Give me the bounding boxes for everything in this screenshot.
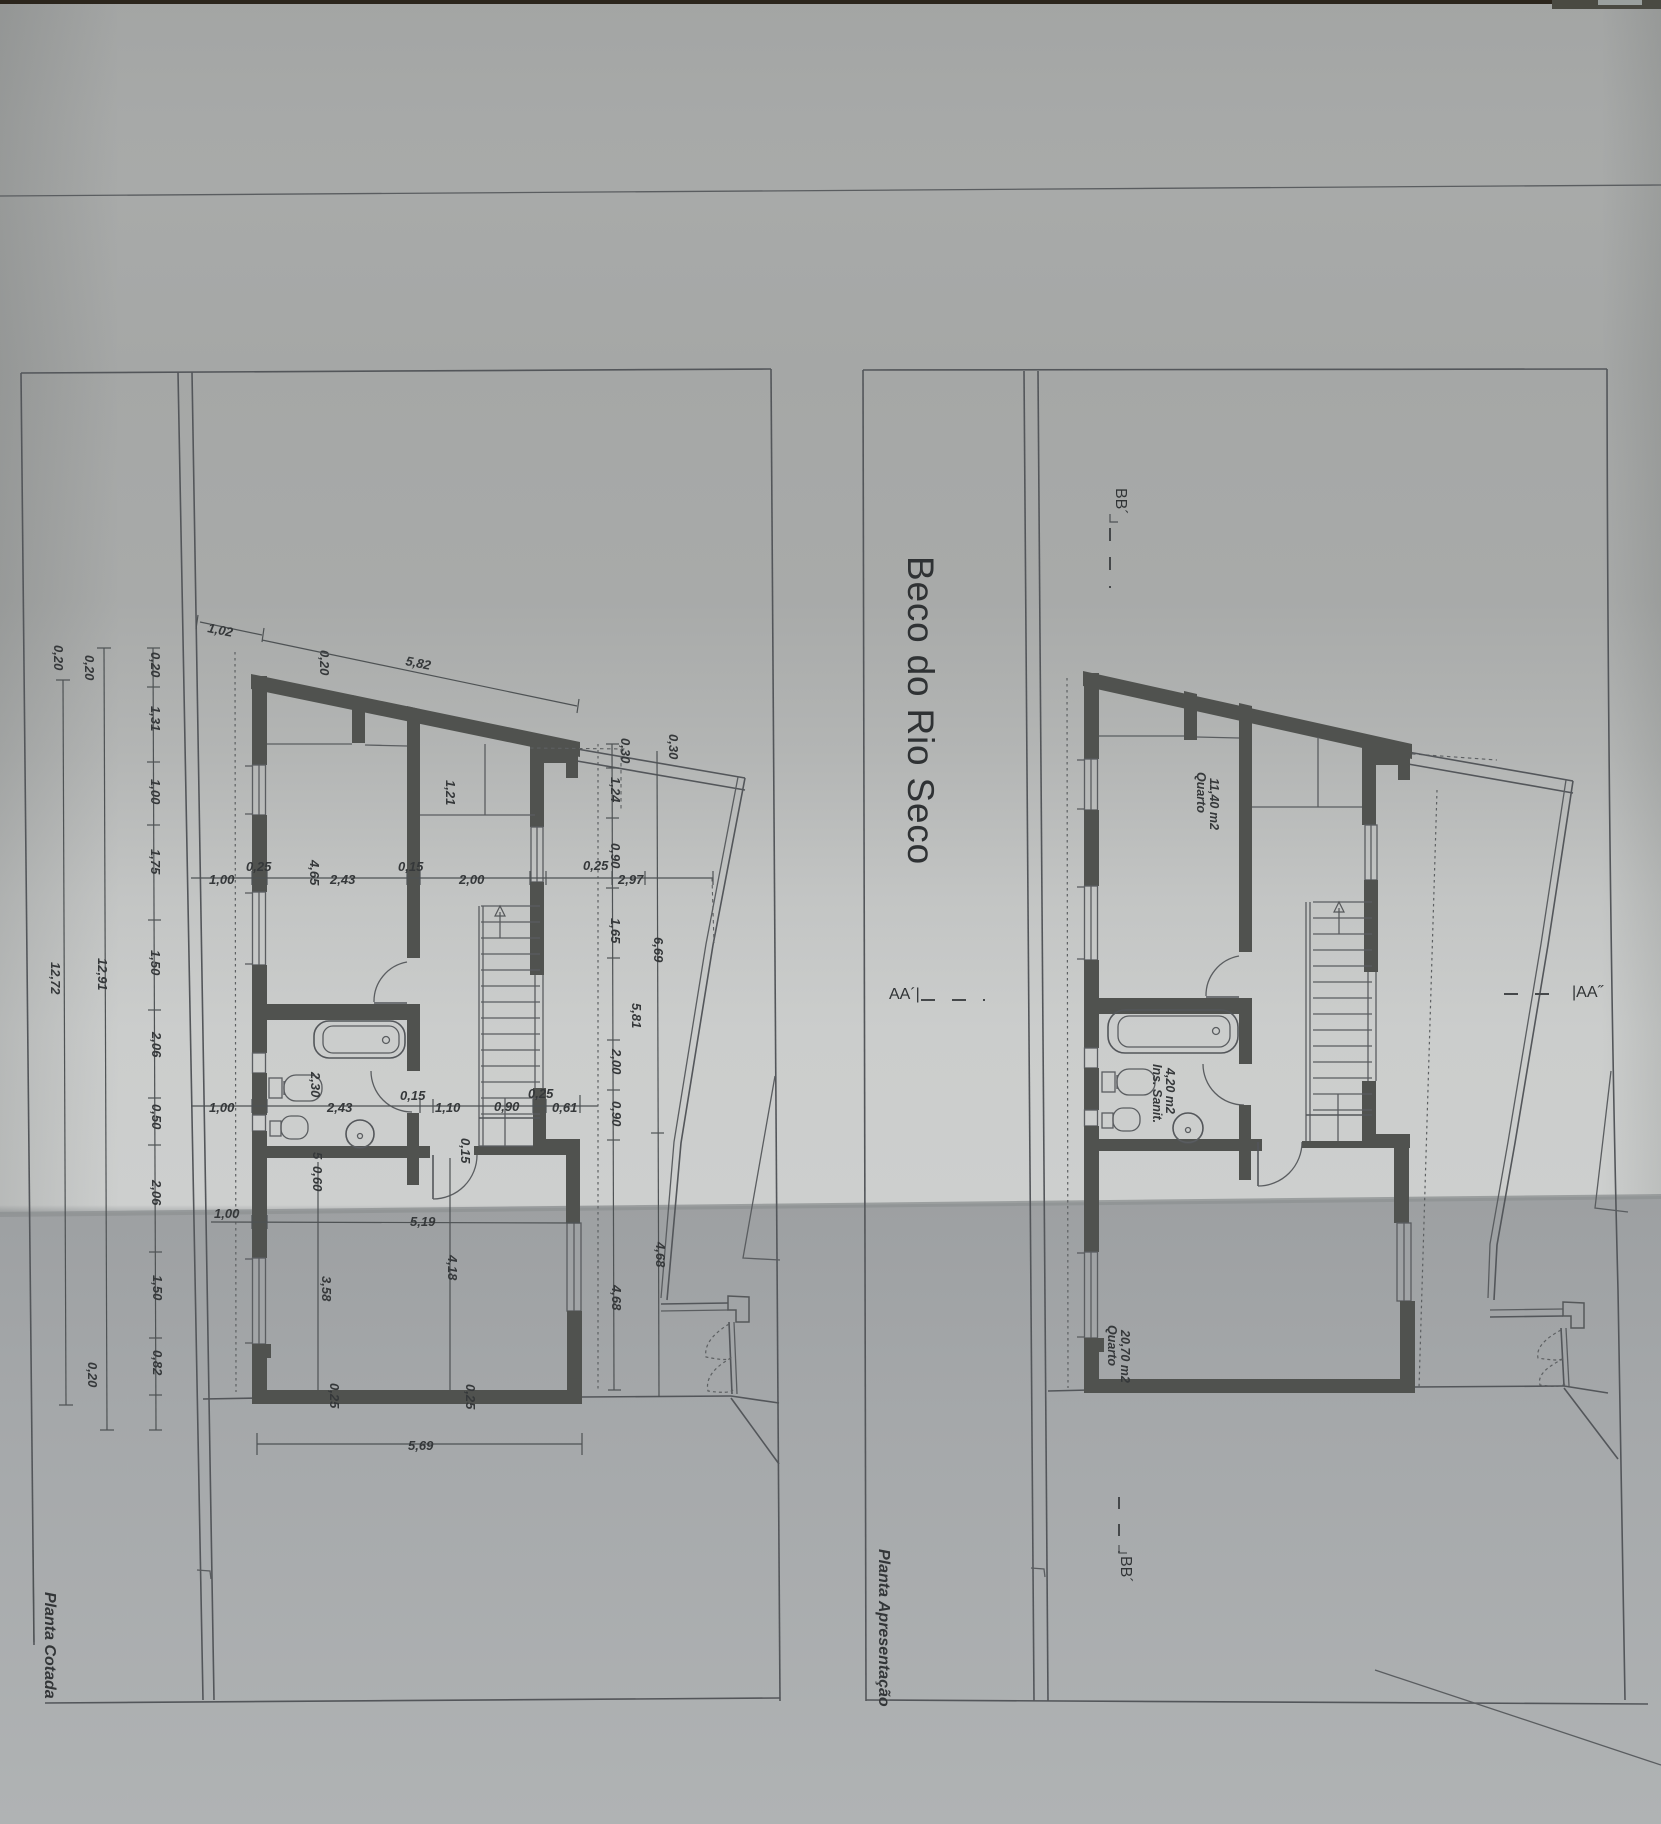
svg-text:4,68: 4,68 [609,1284,624,1311]
svg-text:1,00: 1,00 [209,1100,235,1115]
svg-text:1,50: 1,50 [150,1275,165,1301]
svg-text:2,43: 2,43 [329,872,356,887]
svg-text:5,81: 5,81 [629,1003,644,1028]
svg-text:2,00: 2,00 [609,1048,624,1075]
svg-text:Planta Apresentação: Planta Apresentação [875,1549,892,1707]
svg-text:|AA˝: |AA˝ [1572,984,1605,1001]
svg-text:2,06: 2,06 [149,1179,164,1206]
svg-text:Ins. Sanit.: Ins. Sanit. [1150,1064,1164,1123]
svg-text:6,69: 6,69 [651,937,666,963]
svg-text:1,24: 1,24 [608,777,623,803]
svg-text:4,18: 4,18 [445,1254,460,1281]
svg-text:0,20: 0,20 [148,652,163,678]
svg-text:1,21: 1,21 [443,780,458,805]
svg-text:1,00: 1,00 [148,779,163,805]
svg-text:0,20: 0,20 [51,645,66,671]
svg-text:0,15: 0,15 [458,1138,473,1164]
svg-text:Planta Cotada: Planta Cotada [41,1592,58,1699]
svg-text:1,75: 1,75 [148,849,163,875]
svg-text:0,90: 0,90 [609,1101,624,1127]
svg-text:0,90: 0,90 [608,843,623,869]
svg-text:1,00: 1,00 [214,1206,240,1221]
svg-text:0,30: 0,30 [666,734,681,760]
svg-text:2,97: 2,97 [617,872,644,887]
svg-text:5,19: 5,19 [410,1214,436,1229]
svg-text:1,31: 1,31 [148,706,163,731]
svg-text:4,20 m2: 4,20 m2 [1163,1067,1177,1114]
svg-text:12,91: 12,91 [95,958,110,991]
svg-text:0,15: 0,15 [398,859,424,874]
svg-text:2,43: 2,43 [326,1100,353,1115]
svg-text:0,61: 0,61 [552,1100,577,1115]
svg-text:20,70 m2: 20,70 m2 [1118,1329,1132,1383]
svg-text:0,50: 0,50 [149,1104,164,1130]
svg-text:0,30: 0,30 [618,738,633,764]
svg-text:0,25: 0,25 [463,1384,478,1410]
svg-text:1,00: 1,00 [209,872,235,887]
svg-text:5,69: 5,69 [408,1438,434,1453]
svg-text:1,10: 1,10 [435,1100,461,1115]
svg-text:4,68: 4,68 [653,1241,668,1268]
svg-text:0,25: 0,25 [528,1086,554,1101]
svg-text:1,02: 1,02 [206,620,234,640]
svg-text:Quarto: Quarto [1194,772,1208,813]
svg-text:2,06: 2,06 [149,1031,164,1058]
svg-text:AA´|: AA´| [889,986,920,1003]
svg-text:2,00: 2,00 [458,872,485,887]
svg-text:11,40 m2: 11,40 m2 [1207,778,1221,830]
svg-text:4,65: 4,65 [307,859,322,886]
svg-text:1,50: 1,50 [148,950,163,976]
svg-text:5: 5 [310,1152,325,1160]
svg-text:0,82: 0,82 [150,1350,165,1376]
svg-text:0,60: 0,60 [310,1166,325,1192]
svg-text:BB´: BB´ [1112,488,1129,515]
svg-text:Beco do Rio Seco: Beco do Rio Seco [900,556,941,865]
svg-text:BB´: BB´ [1117,1556,1134,1583]
svg-text:0,90: 0,90 [494,1099,520,1114]
svg-text:0,15: 0,15 [400,1088,426,1103]
svg-text:0,20: 0,20 [82,655,97,681]
svg-text:0,25: 0,25 [583,858,609,873]
svg-text:3,58: 3,58 [319,1276,334,1302]
svg-text:0,20: 0,20 [85,1362,100,1388]
svg-text:5,82: 5,82 [404,653,432,673]
svg-text:0,25: 0,25 [246,859,272,874]
svg-text:0,25: 0,25 [327,1383,342,1409]
svg-text:1,65: 1,65 [608,918,623,944]
svg-text:12,72: 12,72 [48,962,63,995]
svg-text:2,30: 2,30 [308,1071,323,1098]
svg-text:Quarto: Quarto [1105,1325,1119,1366]
